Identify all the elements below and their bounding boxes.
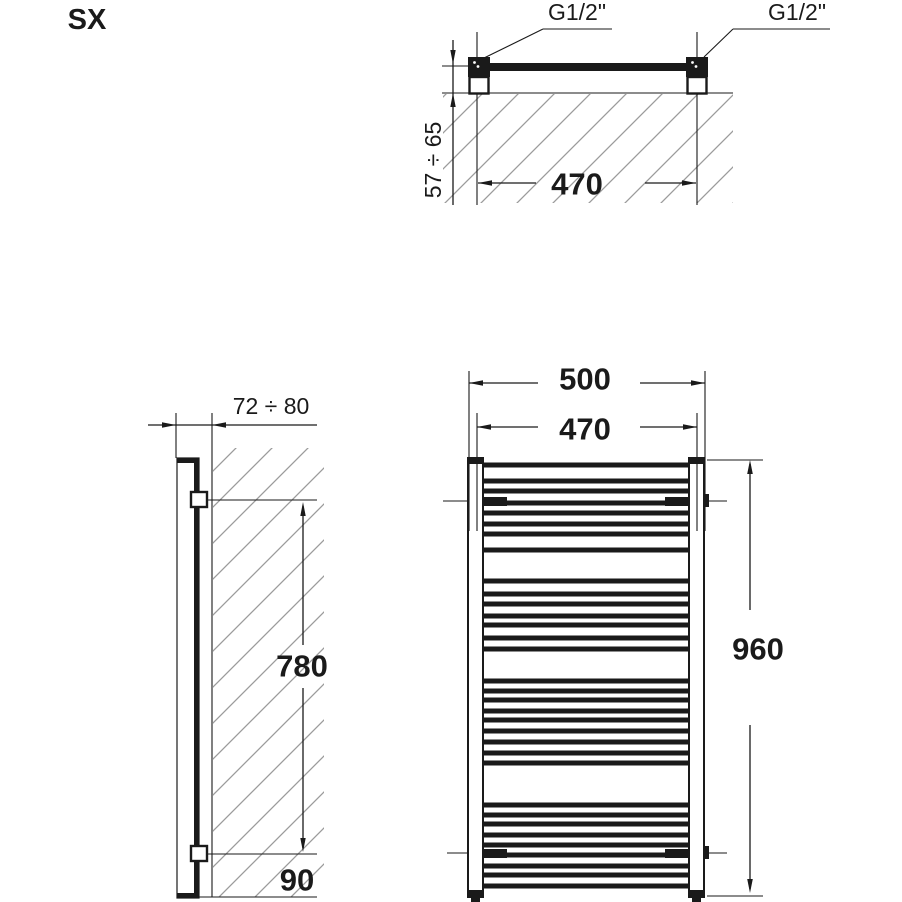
rung [483,479,689,484]
right-foot [692,897,701,902]
connection-thread-label-right: G1/2" [768,0,826,25]
arrow-left-icon [477,424,491,429]
rung [483,623,689,628]
rung [483,463,689,468]
rung [483,729,689,734]
left-foot [471,897,480,902]
right-valve-thread-mark [695,65,698,68]
top-wall-fitting [191,492,207,507]
front-view: 500 470 960 [443,362,784,902]
left-wall-bracket [470,77,489,94]
pitch-dimension-label-front-view: 470 [559,412,611,447]
rung [483,698,689,703]
rung [483,647,689,652]
overall-width-dimension-label: 500 [559,362,611,397]
rung [483,522,689,527]
arrow-left-icon [212,422,226,428]
profile-top-cap [177,458,199,463]
drawing-variant-label: SX [68,4,107,36]
bottom-left-connection-mark [483,849,507,858]
rung [483,614,689,619]
right-wall-bracket [688,77,707,94]
rung [483,548,689,553]
rung [483,751,689,756]
rung [483,532,689,537]
bottom-wall-fitting [191,846,207,861]
left-valve-thread-mark [473,61,476,64]
radiator-drawing-svg: SX G1/2" G1/2" 57 ÷ 65 [0,0,902,902]
left-valve-thread-mark [477,65,480,68]
bottom-right-connection-mark [665,849,689,858]
left-leader-line [484,29,543,58]
top-left-connection-mark [483,497,507,506]
front-view-rungs [483,463,689,889]
rung [483,813,689,818]
rung [483,579,689,584]
side-view: 72 ÷ 80 780 90 [148,393,328,898]
arrow-down-icon [450,50,455,64]
bottom-offset-dimension-label: 90 [280,863,314,898]
bottom-right-connection-stub [704,846,709,859]
rung [483,636,689,641]
rung [483,602,689,607]
rung [483,740,689,745]
rung [483,489,689,494]
rung [483,873,689,878]
top-right-connection-mark [665,497,689,506]
arrow-right-icon [691,380,705,385]
rung [483,709,689,714]
arrow-up-icon [747,460,753,474]
right-valve-thread-mark [691,61,694,64]
arrow-right-icon [683,424,697,429]
left-collector-tube [468,458,483,897]
left-collector-bottom-cap [468,890,483,897]
rung [483,864,689,869]
rung [483,689,689,694]
rung [483,592,689,597]
overall-height-dimension-label: 960 [732,632,784,667]
arrow-down-icon [747,879,753,893]
rung [483,853,689,858]
top-view: G1/2" G1/2" 57 ÷ 65 470 [420,0,830,205]
rung [483,679,689,684]
rung [483,803,689,808]
rung [483,718,689,723]
right-collector-bottom-cap [689,890,704,897]
pitch-dimension-label-top-view: 470 [551,167,603,202]
rung [483,511,689,516]
rung [483,833,689,838]
technical-drawing-page: SX G1/2" G1/2" 57 ÷ 65 [0,0,902,902]
right-leader-line [704,29,733,57]
rung [483,822,689,827]
arrow-right-icon [162,422,176,428]
profile-front-face [194,458,199,898]
arrow-left-icon [469,380,483,385]
left-collector-top-cap [468,458,483,464]
depth-dimension-label-side: 72 ÷ 80 [233,393,310,419]
connection-thread-label-left: G1/2" [548,0,606,25]
rung [483,843,689,848]
radiator-plan-body [485,63,688,71]
rung [483,761,689,766]
rung [483,501,689,506]
wall-distance-dimension-label: 57 ÷ 65 [420,122,446,199]
connection-height-dimension-label: 780 [276,649,328,684]
rung [483,884,689,889]
